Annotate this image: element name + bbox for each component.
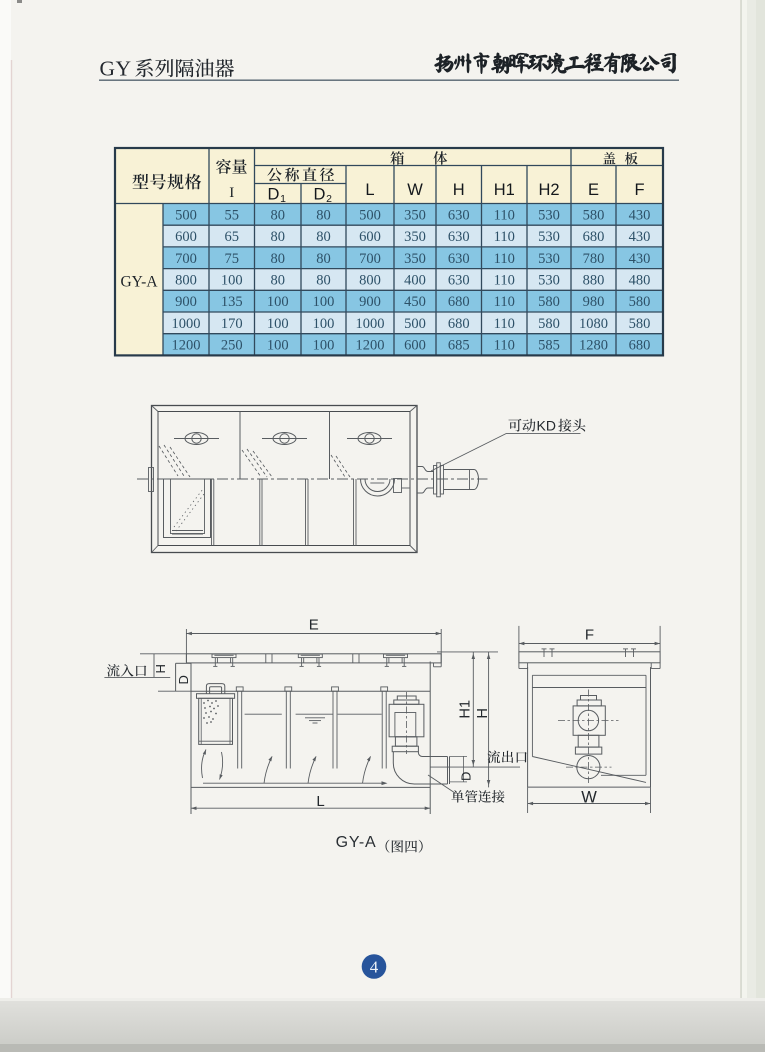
svg-text:350: 350 [404,229,426,245]
svg-text:80: 80 [271,229,286,245]
svg-text:KD: KD [537,418,556,434]
svg-text:430: 430 [629,251,651,267]
svg-text:80: 80 [271,251,286,267]
svg-text:E: E [309,617,319,634]
svg-text:700: 700 [359,251,381,267]
svg-text:1200: 1200 [356,338,385,354]
svg-text:100: 100 [313,316,335,332]
svg-text:H2: H2 [538,181,559,199]
svg-text:100: 100 [267,338,289,354]
svg-text:430: 430 [629,229,651,245]
svg-text:D: D [459,772,474,781]
svg-text:L: L [316,793,324,810]
svg-text:H: H [453,181,465,199]
svg-text:685: 685 [448,338,470,354]
svg-text:500: 500 [404,316,426,332]
svg-text:700: 700 [175,251,197,267]
svg-text:80: 80 [316,273,331,289]
svg-text:W: W [407,181,423,199]
svg-text:D: D [176,675,191,684]
svg-text:530: 530 [538,251,560,267]
svg-text:630: 630 [448,273,470,289]
svg-text:1: 1 [280,193,286,205]
svg-text:600: 600 [175,229,197,245]
svg-text:530: 530 [538,229,560,245]
svg-text:GY-A: GY-A [336,834,377,851]
svg-text:1080: 1080 [579,316,608,332]
svg-text:250: 250 [221,338,243,354]
svg-text:400: 400 [404,273,426,289]
svg-text:580: 580 [629,316,651,332]
svg-text:100: 100 [221,273,243,289]
svg-text:1200: 1200 [172,338,201,354]
svg-text:630: 630 [448,229,470,245]
svg-text:GY: GY [100,57,132,81]
svg-text:110: 110 [494,251,515,267]
svg-text:110: 110 [494,316,515,332]
svg-text:980: 980 [583,294,605,310]
svg-text:680: 680 [448,294,470,310]
svg-text:H: H [153,664,168,673]
svg-text:1000: 1000 [356,316,385,332]
svg-text:110: 110 [494,273,515,289]
svg-text:580: 580 [538,294,560,310]
svg-text:H1: H1 [458,700,474,719]
svg-text:585: 585 [538,338,560,354]
svg-text:450: 450 [404,294,426,310]
svg-text:680: 680 [629,338,651,354]
svg-text:500: 500 [175,207,197,223]
svg-text:110: 110 [494,294,515,310]
svg-text:100: 100 [267,294,289,310]
svg-text:100: 100 [267,316,289,332]
svg-text:80: 80 [271,207,286,223]
svg-text:600: 600 [404,338,426,354]
svg-text:2: 2 [326,193,332,205]
svg-text:75: 75 [225,251,240,267]
svg-text:F: F [634,181,644,199]
svg-text:680: 680 [583,229,605,245]
svg-text:W: W [581,789,597,807]
svg-text:900: 900 [359,294,381,310]
svg-text:900: 900 [175,294,197,310]
svg-text:D: D [268,186,280,204]
svg-text:110: 110 [494,338,515,354]
svg-text:170: 170 [221,316,243,332]
svg-text:L: L [365,181,374,199]
svg-text:1000: 1000 [172,316,201,332]
svg-text:480: 480 [629,273,651,289]
svg-text:680: 680 [448,316,470,332]
svg-text:600: 600 [359,229,381,245]
svg-text:580: 580 [583,207,605,223]
svg-text:D: D [314,186,326,204]
svg-text:580: 580 [629,294,651,310]
svg-text:F: F [585,627,594,644]
svg-text:135: 135 [221,294,243,310]
svg-text:110: 110 [494,229,515,245]
svg-text:100: 100 [313,338,335,354]
svg-text:630: 630 [448,207,470,223]
svg-text:1280: 1280 [579,338,608,354]
svg-text:80: 80 [316,251,331,267]
svg-text:4: 4 [370,958,379,977]
svg-text:800: 800 [359,273,381,289]
svg-text:65: 65 [225,229,240,245]
svg-text:110: 110 [494,207,515,223]
svg-text:350: 350 [404,251,426,267]
svg-text:630: 630 [448,251,470,267]
svg-text:100: 100 [313,294,335,310]
svg-text:580: 580 [538,316,560,332]
svg-text:530: 530 [538,273,560,289]
svg-text:80: 80 [316,207,331,223]
svg-text:780: 780 [583,251,605,267]
svg-text:880: 880 [583,273,605,289]
svg-text:800: 800 [175,273,197,289]
svg-text:80: 80 [271,273,286,289]
svg-text:I: I [229,185,234,201]
svg-text:H: H [475,708,491,718]
svg-text:500: 500 [359,207,381,223]
svg-text:H1: H1 [494,181,515,199]
svg-text:430: 430 [629,207,651,223]
svg-text:350: 350 [404,207,426,223]
svg-text:530: 530 [538,207,560,223]
svg-text:E: E [588,181,599,199]
svg-text:55: 55 [225,207,240,223]
svg-text:GY-A: GY-A [120,274,158,291]
svg-text:80: 80 [316,229,331,245]
